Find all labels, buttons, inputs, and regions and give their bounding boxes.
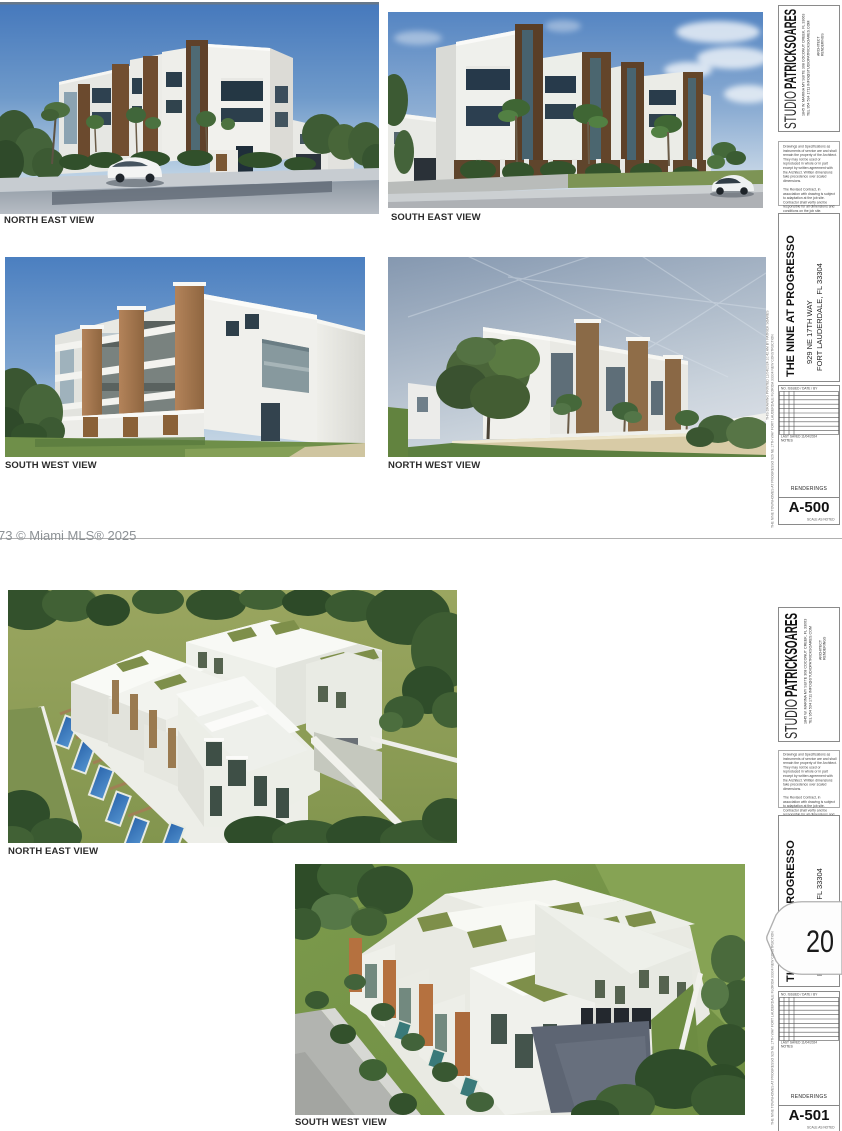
svg-text:20: 20 <box>806 924 834 960</box>
svg-text:PATRICKSOARES: PATRICKSOARES <box>781 613 801 697</box>
svg-text:PATRICKSOARES: PATRICKSOARES <box>781 9 800 89</box>
svg-text:STUDIO: STUDIO <box>781 91 800 129</box>
svg-text:STUDIO: STUDIO <box>781 699 801 739</box>
